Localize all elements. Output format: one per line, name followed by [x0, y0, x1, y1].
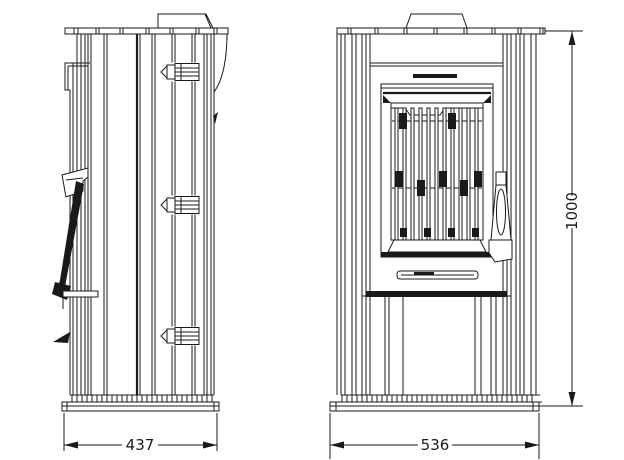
stove-technical-drawing: 437: [0, 0, 624, 460]
arrowhead-down: [569, 392, 576, 406]
door-hinge-middle: [161, 196, 200, 215]
base-plinth-side: [62, 395, 219, 411]
dimension-label-536: 536: [421, 436, 450, 454]
ash-lip: [397, 271, 478, 279]
side-view: 437: [52, 14, 228, 454]
front-panel: [370, 63, 503, 66]
ribbed-body-side: [65, 34, 227, 395]
dimension-side-width: 437: [64, 413, 217, 454]
door-hinge-top: [161, 63, 200, 82]
dimension-front-width: 536: [330, 413, 539, 459]
drawing-canvas: 437: [0, 0, 624, 460]
flue-collar-front: [406, 14, 467, 28]
flue-collar-side: [158, 14, 213, 28]
arrowhead-up: [569, 31, 576, 45]
door-sill: [388, 240, 486, 252]
dimension-label-1000: 1000: [563, 192, 581, 230]
arrowhead-right: [525, 442, 539, 449]
door-hinge-bottom: [161, 327, 200, 346]
dimension-height: 1000: [539, 31, 583, 406]
front-view: 536 1000: [330, 14, 583, 459]
panel-bottom-band: [366, 291, 507, 297]
dimension-label-437: 437: [126, 436, 155, 454]
base-plinth-front: [330, 395, 542, 411]
top-plate-front: [337, 28, 545, 34]
arrowhead-left: [330, 442, 344, 449]
air-control-slot: [413, 74, 457, 78]
arrowhead-right: [203, 442, 217, 449]
glass-door: [381, 74, 493, 257]
arrowhead-left: [64, 442, 78, 449]
top-plate-side: [65, 28, 228, 34]
